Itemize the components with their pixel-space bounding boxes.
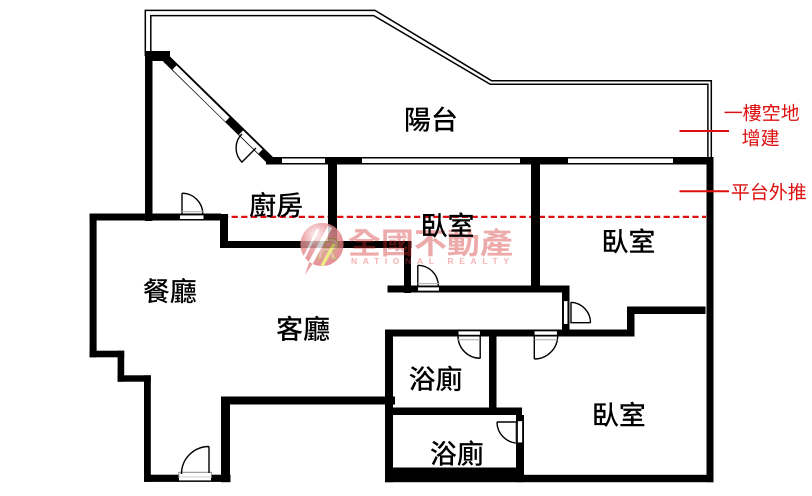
svg-text:NATIONAL REALTY: NATIONAL REALTY (351, 256, 515, 266)
